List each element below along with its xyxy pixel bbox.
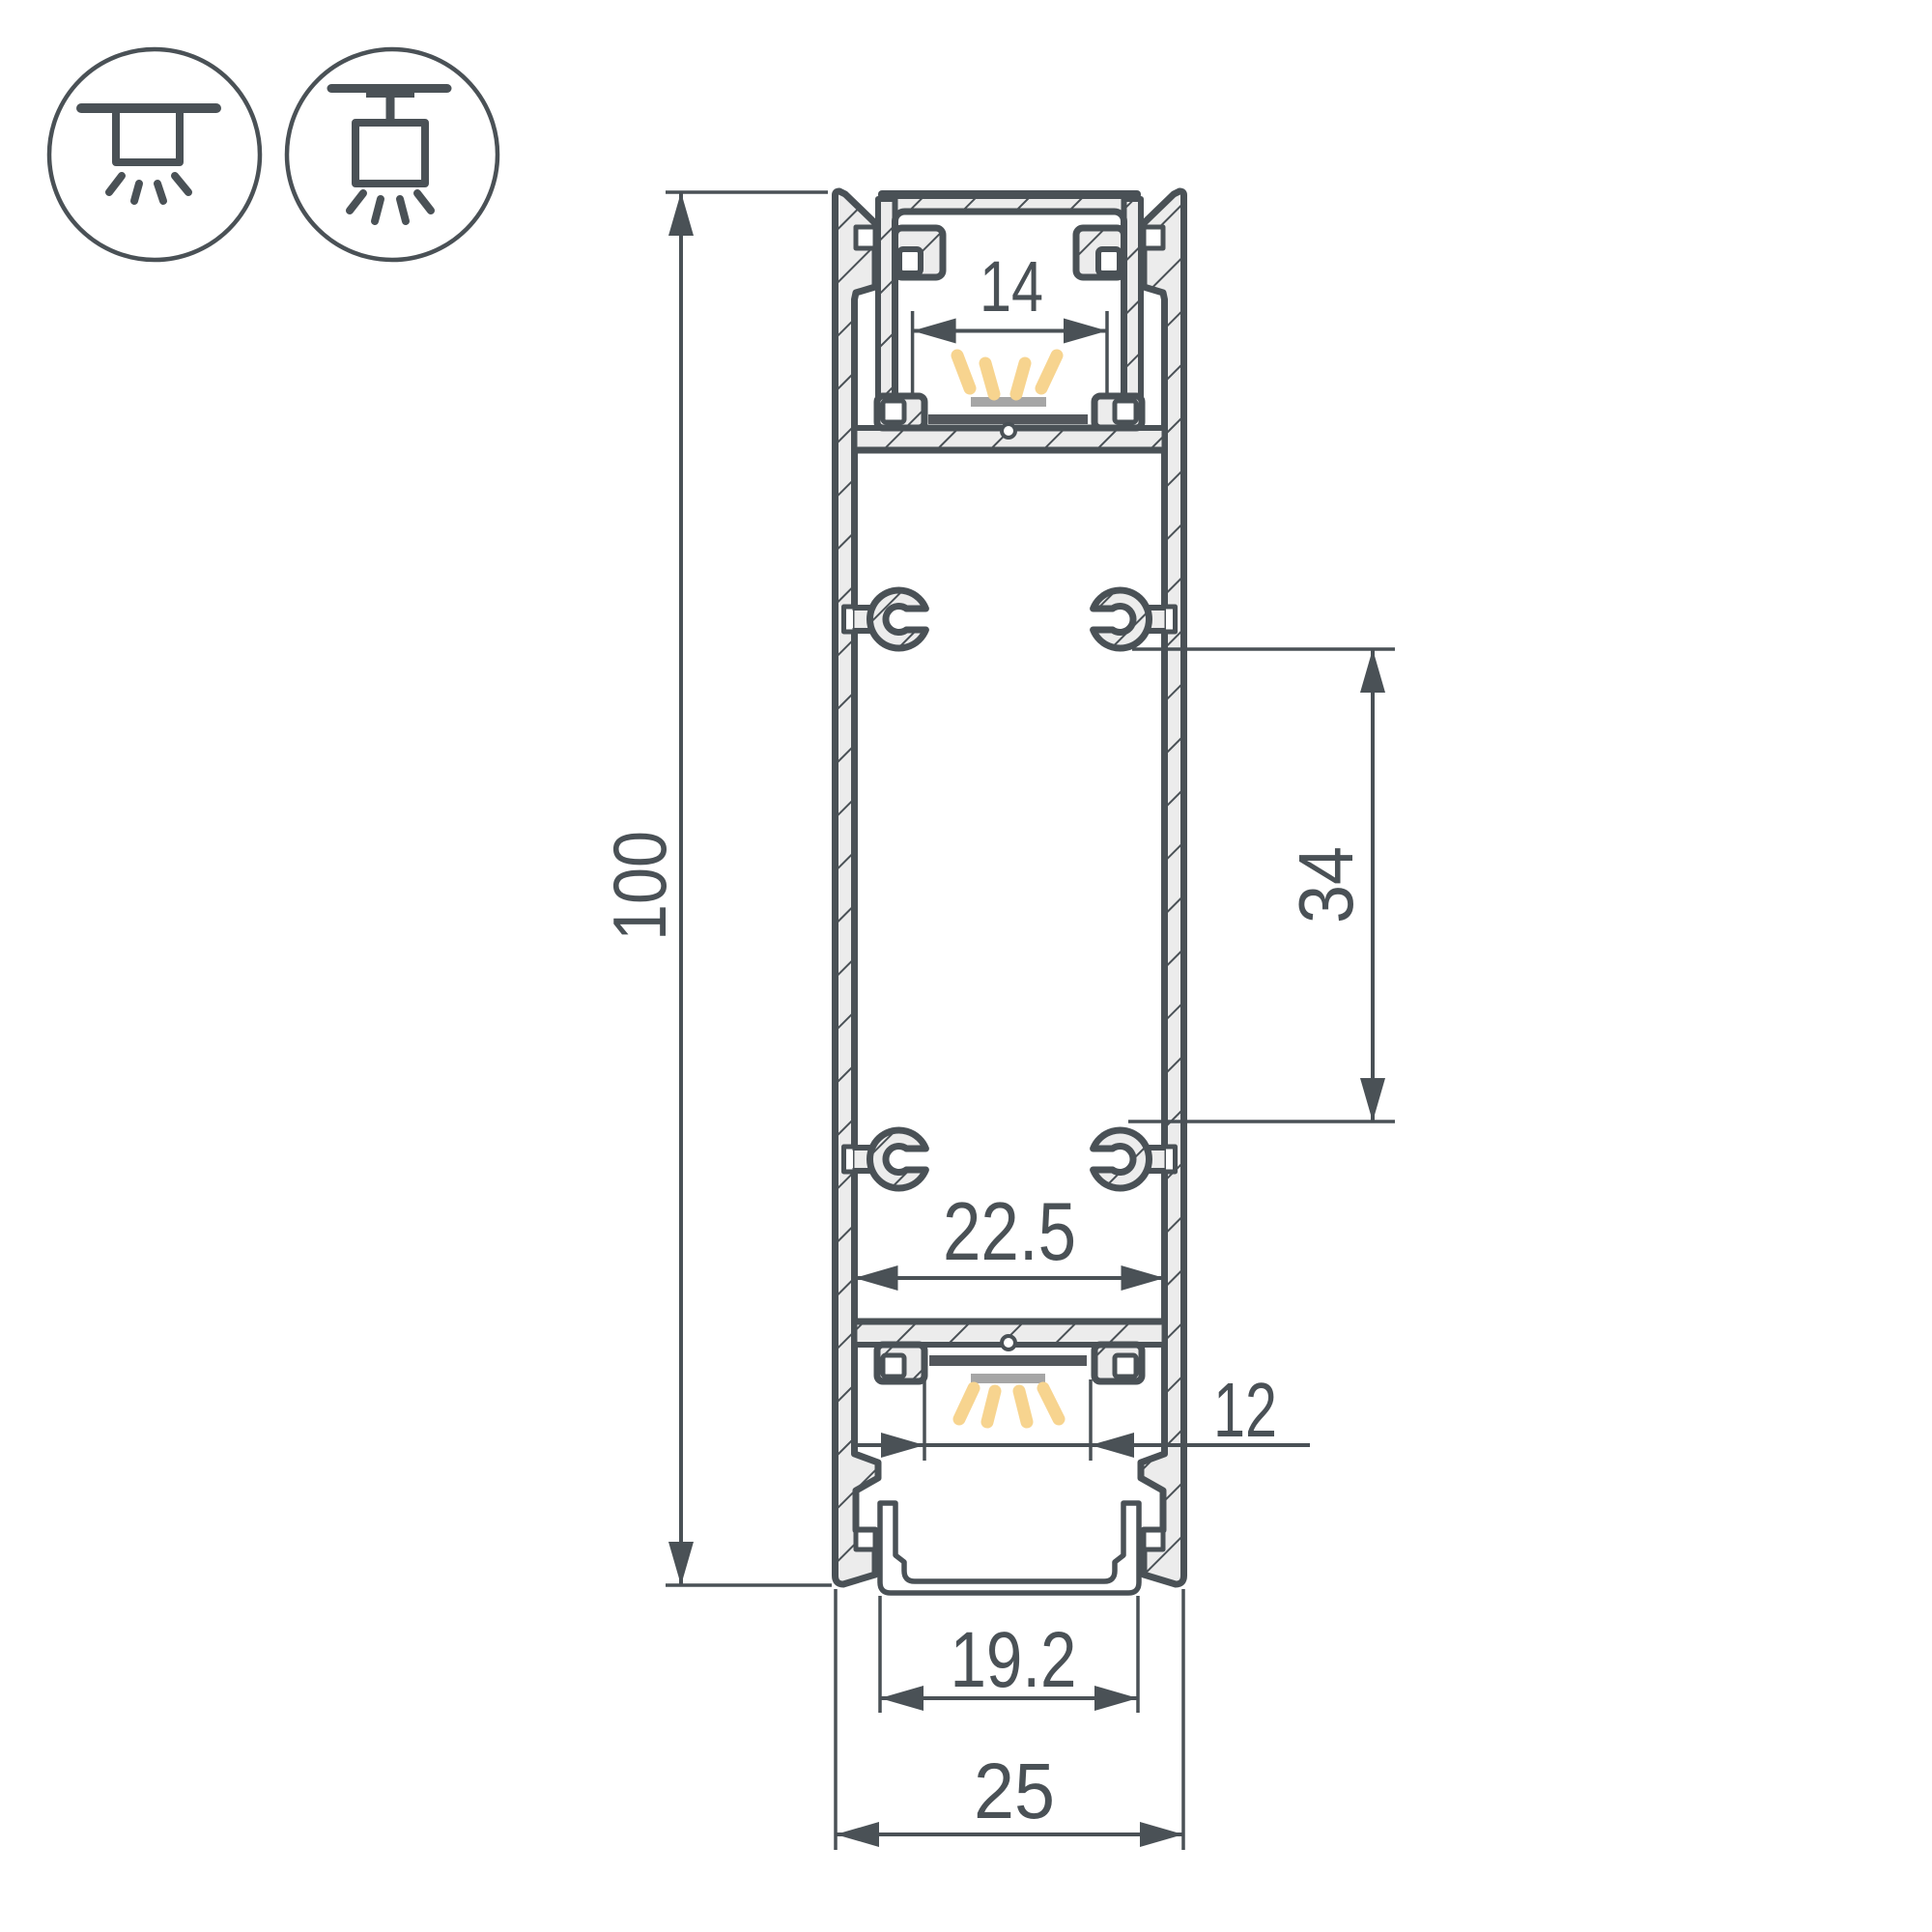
svg-text:19.2: 19.2 xyxy=(951,1616,1077,1704)
svg-text:25: 25 xyxy=(974,1747,1055,1835)
svg-text:12: 12 xyxy=(1213,1367,1277,1453)
svg-text:34: 34 xyxy=(1283,846,1369,923)
svg-text:22.5: 22.5 xyxy=(943,1186,1076,1278)
svg-text:14: 14 xyxy=(980,246,1043,327)
svg-text:100: 100 xyxy=(597,831,682,941)
